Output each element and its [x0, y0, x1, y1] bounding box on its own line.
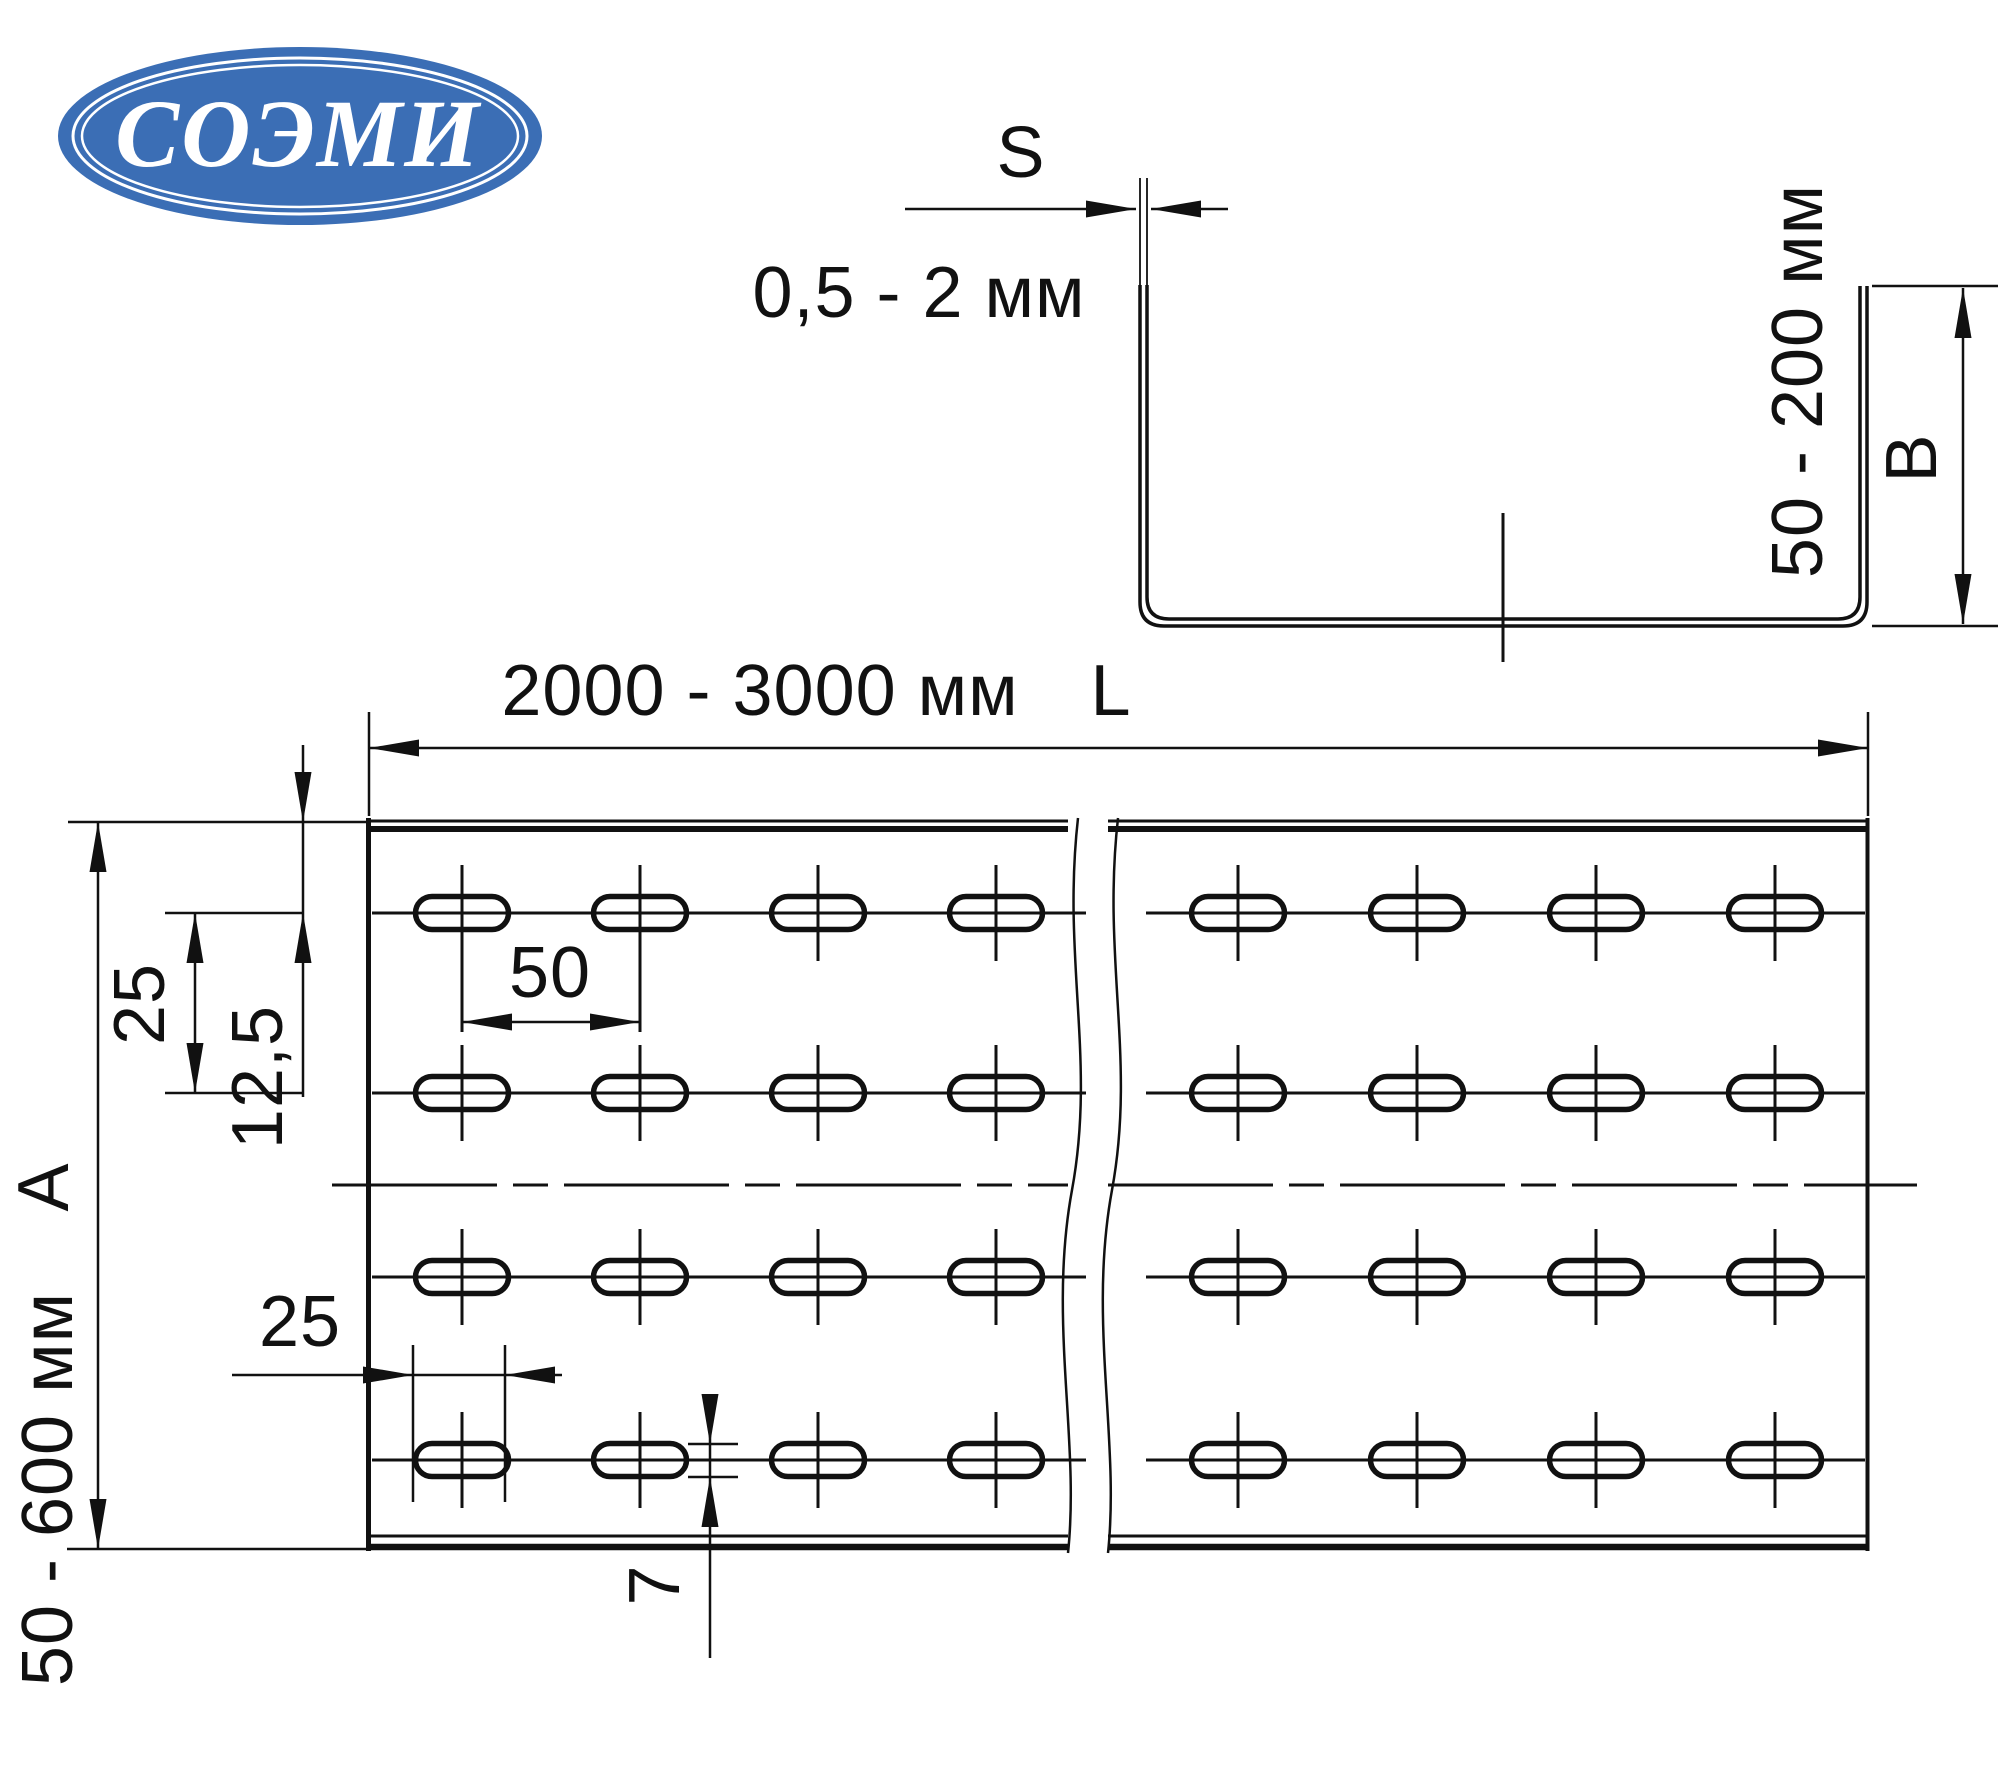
slot-length-label: 25 [259, 1281, 341, 1363]
thickness-range-label: 0,5 - 2 мм [752, 252, 1085, 334]
slot [1327, 1045, 1507, 1141]
edge-offset-label: 12,5 [217, 1005, 299, 1149]
slot [550, 1045, 730, 1141]
slot [1327, 1229, 1507, 1325]
slot [1506, 1412, 1686, 1508]
slot [1506, 1045, 1686, 1141]
slot [372, 1229, 552, 1325]
thickness-letter-label: S [996, 112, 1045, 194]
slot [1327, 865, 1507, 961]
row-spacing-label: 25 [99, 963, 181, 1045]
slot [1685, 1045, 1865, 1141]
slot [1685, 1229, 1865, 1325]
width-range-label: 50 - 600 мм [7, 1292, 89, 1686]
slot [1506, 865, 1686, 961]
length-range-label: 2000 - 3000 мм [501, 650, 1018, 732]
side-height-letter-label: B [1871, 433, 1953, 482]
soemi-logo-text: СОЭМИ [115, 78, 481, 189]
length-letter-label: L [1090, 650, 1131, 732]
slot-width-label: 7 [614, 1564, 696, 1605]
slot [550, 1412, 730, 1508]
slot [550, 1229, 730, 1325]
slot [1685, 865, 1865, 961]
slot [728, 1229, 908, 1325]
slot-pitch-label: 50 [509, 932, 591, 1014]
slot [1327, 1412, 1507, 1508]
slot [728, 865, 908, 961]
side-height-range-label: 50 - 200 мм [1757, 184, 1839, 578]
slot [372, 1412, 552, 1508]
slot [372, 1045, 552, 1141]
drawing-stage: СОЭМИ S 0,5 - 2 мм 50 - 200 мм B 2000 - … [0, 0, 2000, 1771]
slot [1506, 1229, 1686, 1325]
slot [728, 1045, 908, 1141]
slot [728, 1412, 908, 1508]
width-letter-label: A [3, 1162, 85, 1211]
slot [1685, 1412, 1865, 1508]
